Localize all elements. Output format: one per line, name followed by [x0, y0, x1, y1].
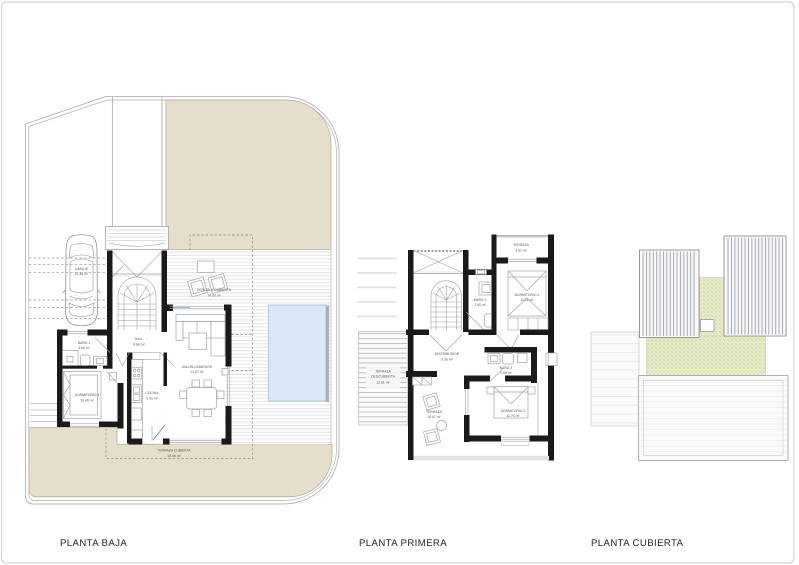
svg-text:BAÑO 1: BAÑO 1	[78, 341, 91, 345]
svg-text:3.66 m²: 3.66 m²	[78, 346, 90, 350]
svg-text:11.21 m²: 11.21 m²	[520, 298, 534, 302]
svg-text:COCINA: COCINA	[145, 391, 159, 395]
svg-text:HALL: HALL	[135, 337, 144, 341]
svg-text:SALON-COMEDOR: SALON-COMEDOR	[182, 365, 213, 369]
svg-text:12.91 m²: 12.91 m²	[376, 381, 390, 385]
svg-text:BAÑO 3: BAÑO 3	[500, 366, 513, 370]
svg-text:5.35 m²: 5.35 m²	[441, 358, 453, 362]
svg-text:5.08 m²: 5.08 m²	[500, 371, 512, 375]
svg-text:52.49 m²: 52.49 m²	[75, 272, 89, 276]
svg-text:13.40 m²: 13.40 m²	[80, 399, 94, 403]
svg-text:TERRAZA: TERRAZA	[513, 243, 530, 247]
svg-text:13.46 m²: 13.46 m²	[167, 454, 181, 458]
svg-text:11.76 m²: 11.76 m²	[506, 414, 520, 418]
svg-text:DORMITORIO 1: DORMITORIO 1	[75, 393, 100, 397]
svg-text:DORMITORIO 3: DORMITORIO 3	[501, 409, 526, 413]
svg-text:8.66 m²: 8.66 m²	[133, 343, 145, 347]
svg-text:14.33 m²: 14.33 m²	[207, 294, 221, 298]
svg-text:9.05 m²: 9.05 m²	[146, 397, 158, 401]
svg-text:PERGOLA CUBIERTA: PERGOLA CUBIERTA	[197, 288, 232, 292]
svg-text:TERRAZA: TERRAZA	[426, 410, 443, 414]
svg-text:PLANTA BAJA: PLANTA BAJA	[60, 538, 127, 549]
svg-text:DORMITORIO 2: DORMITORIO 2	[515, 293, 540, 297]
svg-text:DESCUBIERTA: DESCUBIERTA	[371, 375, 396, 379]
svg-text:BAÑO 2: BAÑO 2	[474, 298, 487, 302]
svg-text:3.91 m²: 3.91 m²	[515, 249, 527, 253]
svg-text:TERRAZA: TERRAZA	[375, 370, 392, 374]
svg-text:21.67 m²: 21.67 m²	[190, 370, 204, 374]
svg-text:DISTRIBUIDOR: DISTRIBUIDOR	[435, 352, 460, 356]
svg-text:PLANTA PRIMERA: PLANTA PRIMERA	[359, 538, 447, 549]
svg-text:PLANTA CUBIERTA: PLANTA CUBIERTA	[591, 538, 684, 549]
svg-text:14.97 m²: 14.97 m²	[427, 415, 441, 419]
svg-text:GARAJE: GARAJE	[75, 267, 89, 271]
svg-text:2.65 m²: 2.65 m²	[474, 303, 486, 307]
svg-text:TERRAZA CUBIERTA: TERRAZA CUBIERTA	[157, 449, 191, 453]
